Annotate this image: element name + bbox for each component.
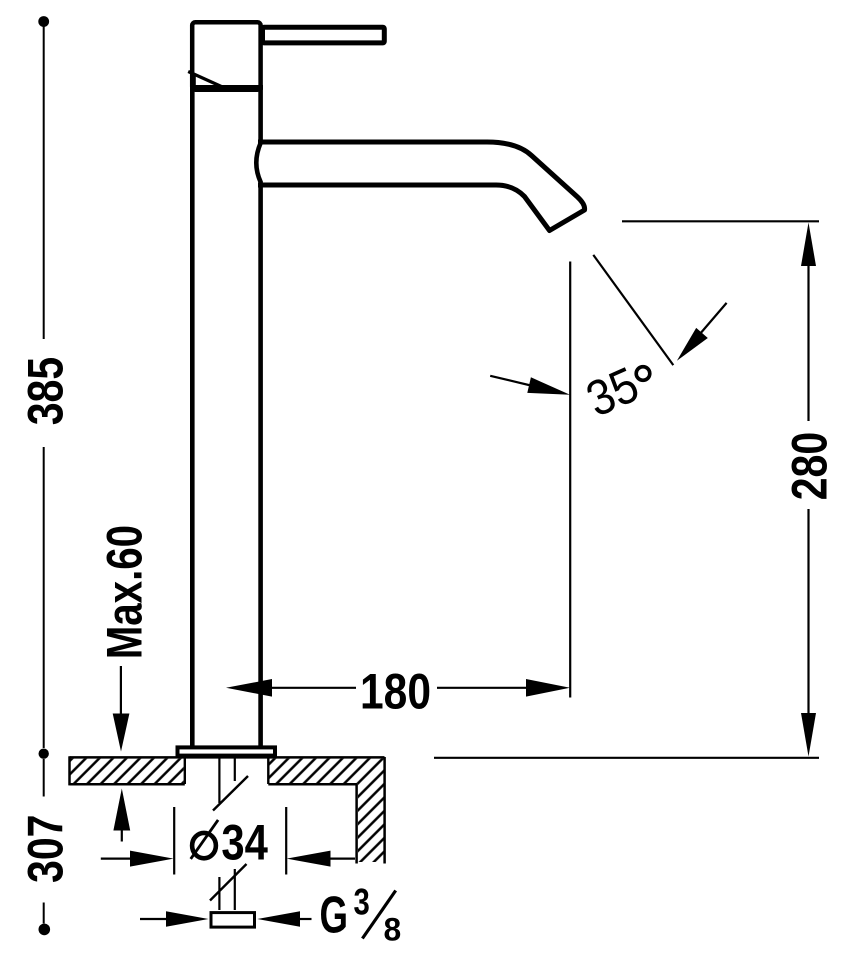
svg-text:3: 3 [354,881,370,923]
svg-text:8: 8 [384,912,402,948]
svg-text:G: G [320,887,349,945]
svg-text:180: 180 [360,664,431,720]
svg-text:34: 34 [221,815,268,871]
svg-text:Max.60: Max.60 [96,525,152,659]
svg-text:280: 280 [782,432,838,501]
svg-text:385: 385 [18,357,74,426]
svg-text:35: 35 [578,356,646,427]
svg-text:307: 307 [18,815,74,884]
